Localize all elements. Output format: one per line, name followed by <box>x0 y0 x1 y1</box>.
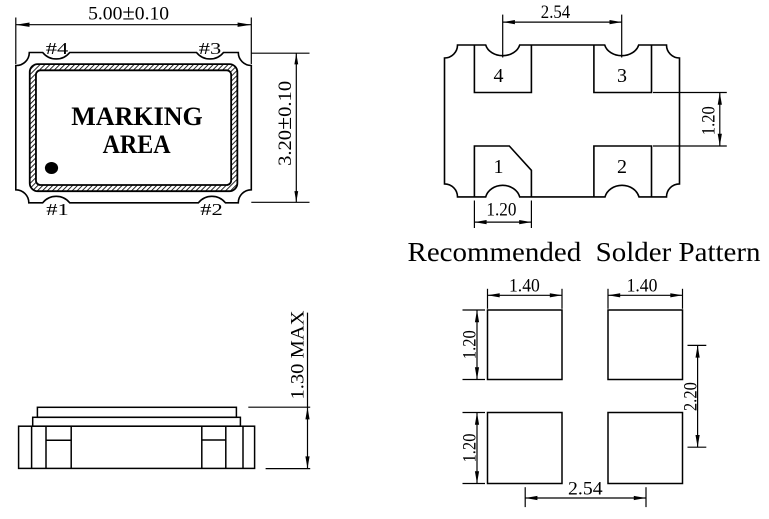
svg-text:2.20: 2.20 <box>680 382 701 411</box>
svg-text:2: 2 <box>617 156 627 178</box>
svg-text:1.20: 1.20 <box>699 106 720 135</box>
svg-text:1: 1 <box>494 156 504 178</box>
svg-text:2.54: 2.54 <box>568 479 603 500</box>
svg-text:1.40: 1.40 <box>627 276 658 297</box>
svg-text:Recommended Solder Pattern: Recommended Solder Pattern <box>408 236 761 267</box>
svg-text:1.20: 1.20 <box>460 330 481 359</box>
svg-text:#4: #4 <box>46 39 69 58</box>
svg-text:1.30 MAX: 1.30 MAX <box>287 310 308 399</box>
svg-text:3.20±0.10: 3.20±0.10 <box>271 81 296 166</box>
svg-text:1.40: 1.40 <box>509 276 540 297</box>
svg-text:#1: #1 <box>46 200 69 219</box>
svg-text:5.00±0.10: 5.00±0.10 <box>88 0 169 25</box>
svg-text:2.54: 2.54 <box>541 3 570 23</box>
svg-text:1.20: 1.20 <box>460 434 481 463</box>
svg-text:AREA: AREA <box>103 130 171 159</box>
svg-text:#3: #3 <box>199 39 222 58</box>
svg-text:MARKING: MARKING <box>71 102 202 131</box>
svg-text:#2: #2 <box>200 200 223 219</box>
svg-text:3: 3 <box>617 65 627 87</box>
svg-text:4: 4 <box>494 65 504 87</box>
svg-text:1.20: 1.20 <box>486 200 516 221</box>
